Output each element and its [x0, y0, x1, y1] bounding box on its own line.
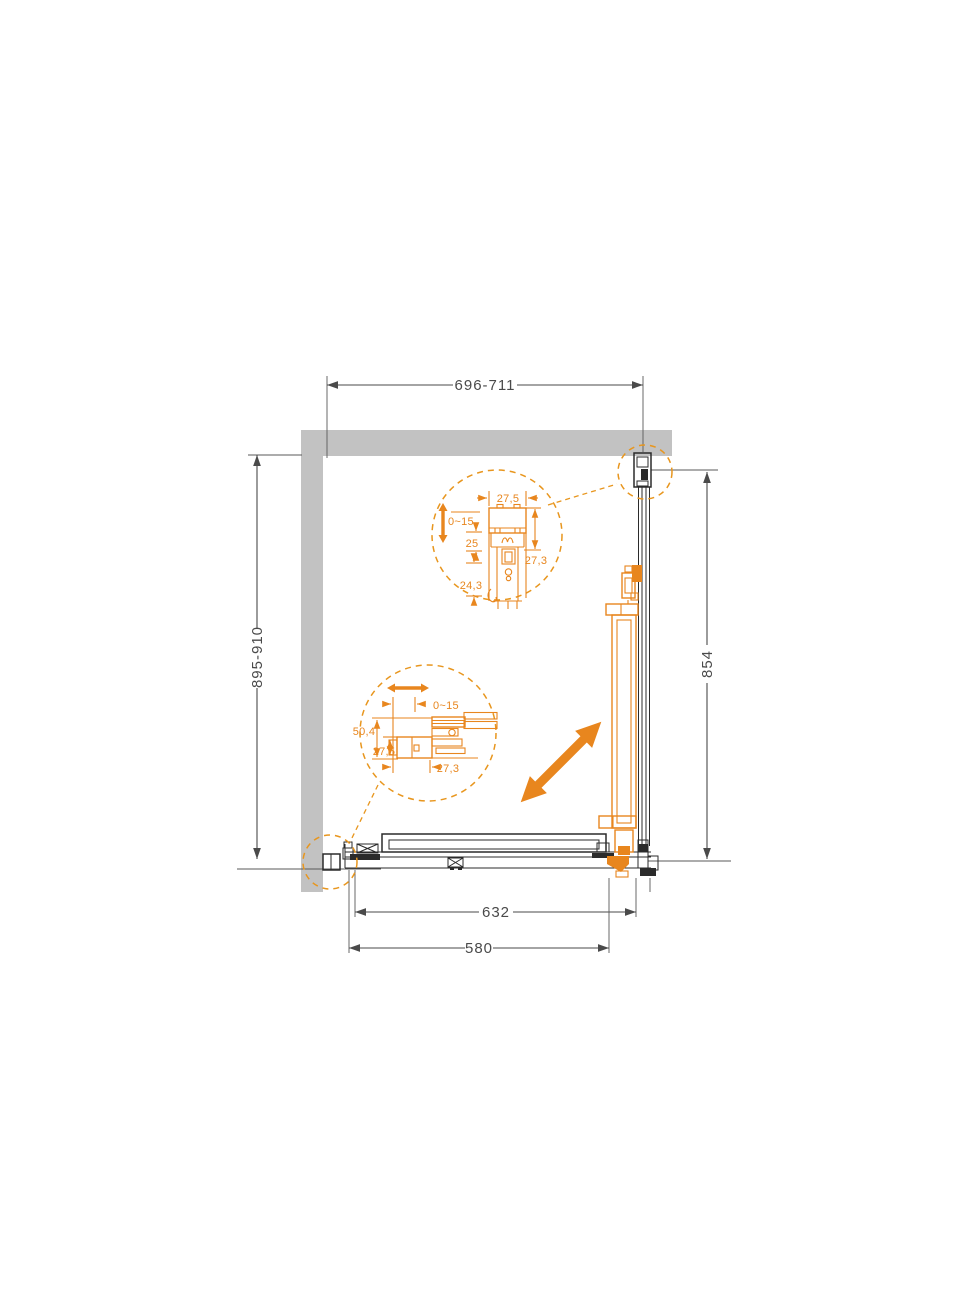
detail-side-total-label: 50,4: [353, 726, 376, 738]
detail-view-top: 27,5 0~15 25 27,3 24,3: [432, 470, 562, 609]
slide-direction-arrow: [512, 713, 610, 811]
detail-side-dimensions: 0~15 50,4 27,5 27,3: [353, 684, 460, 776]
detail-connector-top: [548, 484, 617, 505]
detail-connector-side: [350, 785, 378, 842]
wall-profile-bottom-left: [323, 842, 353, 870]
walls: [301, 430, 672, 892]
dim-bottom-opening-label: 580: [465, 940, 493, 957]
dimension-bottom-glass: 632: [355, 870, 636, 921]
detail-side-profile: [389, 713, 497, 759]
detail-side-width-label: 27,3: [437, 763, 460, 775]
technical-drawing-page: 696-711 895-910 854 632 580: [0, 0, 975, 1300]
detail-top-height-label: 27,3: [525, 555, 548, 567]
fixed-panel-right: [634, 453, 658, 892]
sliding-door-right: [599, 565, 642, 877]
detail-top-width-label: 27,5: [497, 493, 520, 505]
detail-side-depth-label: 27,5: [373, 746, 396, 758]
dim-top-width-label: 696-711: [455, 377, 516, 394]
dim-left-height-label: 895-910: [249, 626, 266, 688]
fixed-panel-floor-profile: [638, 840, 658, 892]
dimension-bottom-opening: 580: [349, 870, 609, 957]
wall-left: [301, 430, 323, 892]
detail-top-lower-label: 24,3: [460, 580, 483, 592]
door-end-right: [592, 843, 614, 858]
dim-right-height-label: 854: [699, 650, 716, 678]
door-top-cap: [606, 604, 638, 615]
door-glass: [612, 615, 636, 828]
dim-bottom-glass-label: 632: [482, 904, 510, 921]
detail-top-profile: [488, 505, 526, 610]
door-glass-panel: [382, 834, 606, 852]
bottom-rail-assembly: [323, 834, 651, 870]
shower-enclosure-diagram: 696-711 895-910 854 632 580: [0, 0, 975, 1300]
detail-side-adjust-label: 0~15: [433, 700, 459, 712]
detail-top-mid-label: 25: [466, 538, 479, 550]
dimension-right-height: 854: [648, 470, 731, 861]
wall-top: [301, 430, 672, 456]
detail-view-side: 0~15 50,4 27,5 27,3: [353, 665, 497, 801]
detail-top-adjust-label: 0~15: [448, 516, 474, 528]
